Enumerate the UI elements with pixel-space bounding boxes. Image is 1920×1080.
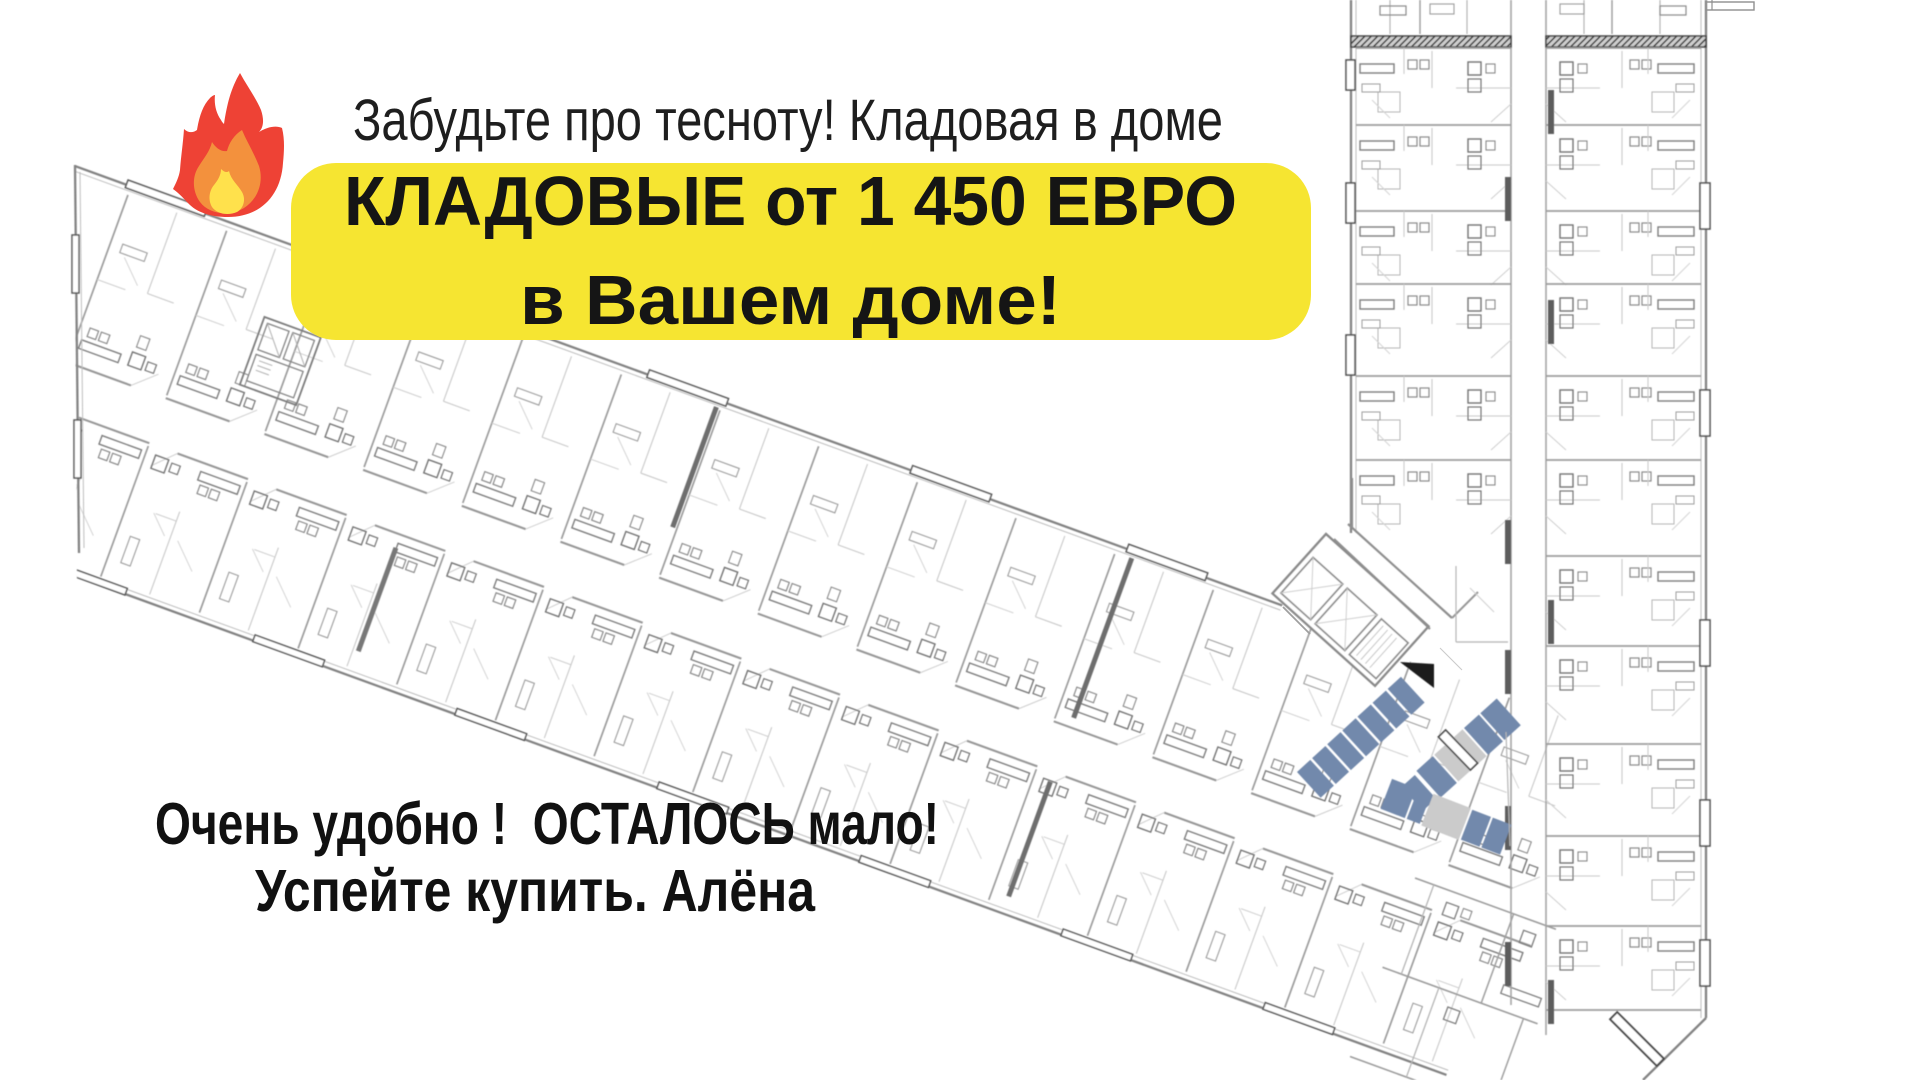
svg-text:Очень удобно ! ОСТАЛОСЬ мало!: Очень удобно ! ОСТАЛОСЬ мало! xyxy=(155,791,939,857)
svg-text:КЛАДОВЫЕ от 1 450 ЕВРО: КЛАДОВЫЕ от 1 450 ЕВРО xyxy=(344,162,1237,240)
svg-text:Забудьте про тесноту! Кладовая: Забудьте про тесноту! Кладовая в доме xyxy=(353,88,1223,153)
svg-text:Успейте купить. Алёна: Успейте купить. Алёна xyxy=(255,858,816,924)
svg-text:в Вашем доме!: в Вашем доме! xyxy=(520,261,1061,339)
